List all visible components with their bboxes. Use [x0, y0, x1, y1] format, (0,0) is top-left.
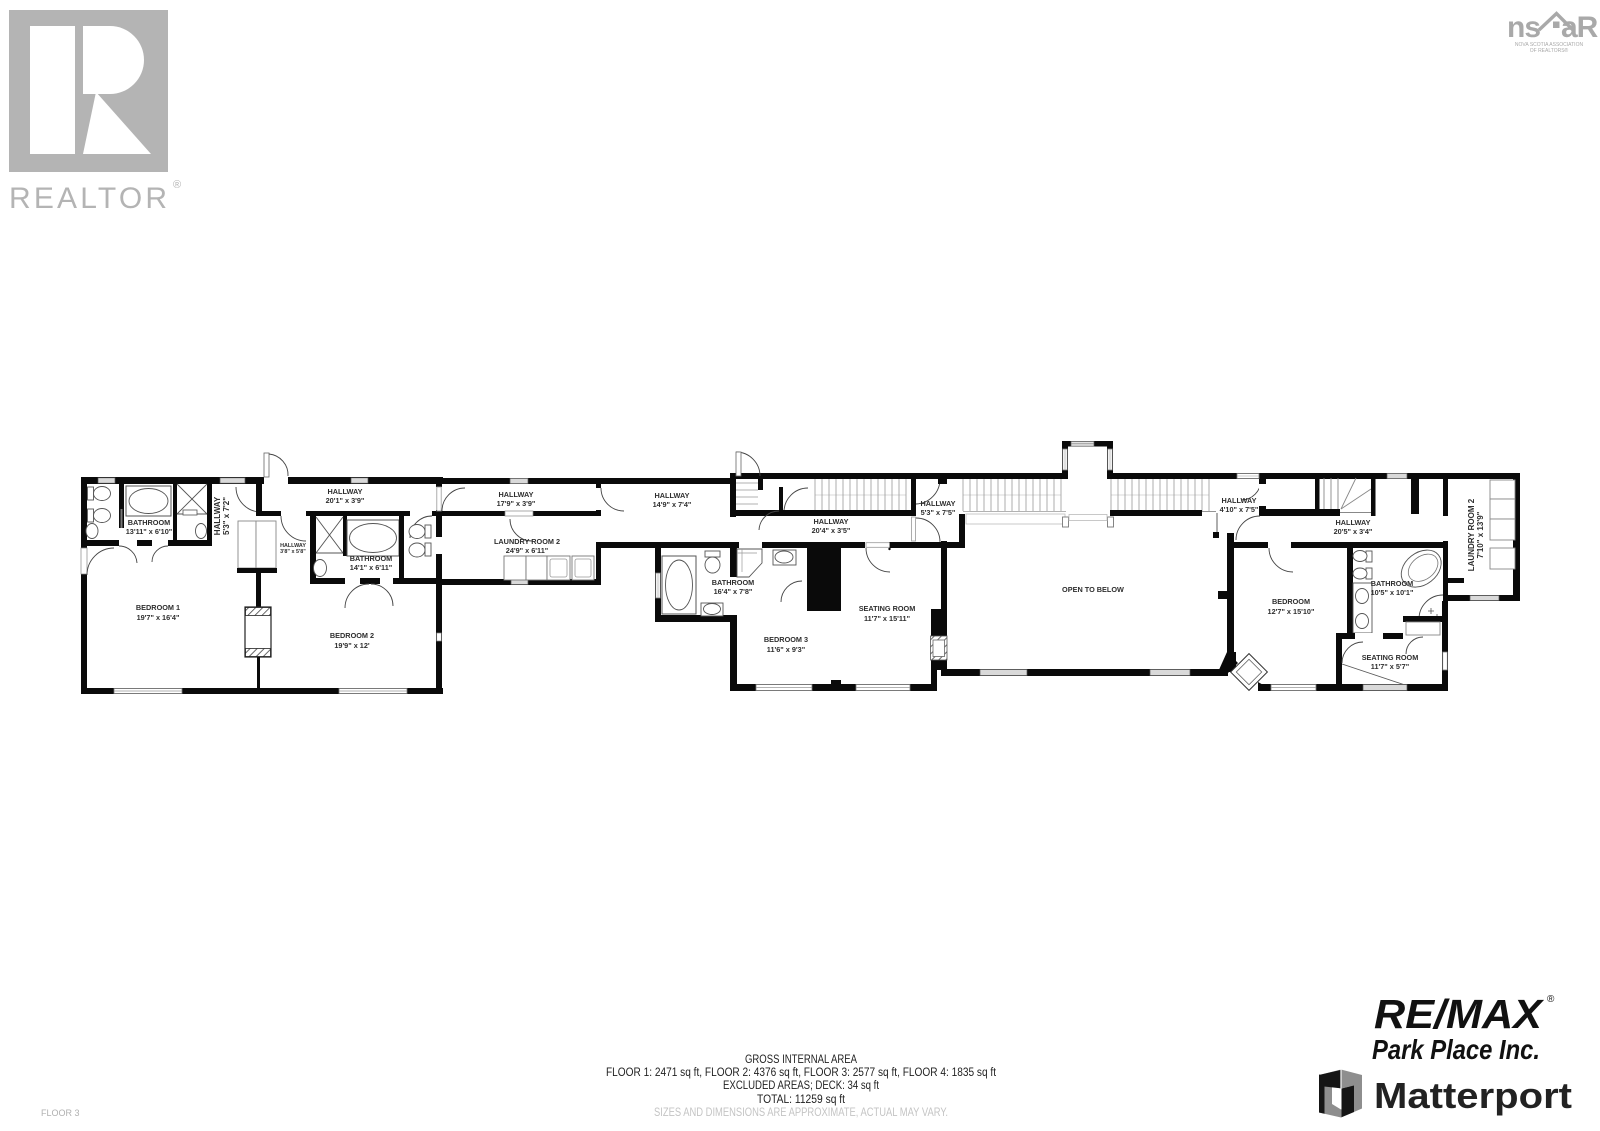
svg-text:®: ® — [1547, 994, 1555, 1005]
svg-text:BATHROOM: BATHROOM — [712, 578, 754, 587]
svg-text:HALLWAY: HALLWAY — [1335, 518, 1370, 527]
svg-text:20'5" x 3'4": 20'5" x 3'4" — [1334, 527, 1373, 536]
svg-text:5'3" x 7'2": 5'3" x 7'2" — [222, 497, 231, 535]
svg-text:BEDROOM: BEDROOM — [1272, 597, 1310, 606]
svg-text:HALLWAY: HALLWAY — [813, 517, 848, 526]
svg-text:HALLWAY: HALLWAY — [920, 499, 955, 508]
svg-text:®: ® — [173, 179, 181, 191]
svg-text:TOTAL: 11259 sq ft: TOTAL: 11259 sq ft — [757, 1094, 846, 1106]
svg-text:Matterport: Matterport — [1374, 1075, 1572, 1116]
svg-text:20'4" x 3'5": 20'4" x 3'5" — [812, 526, 851, 535]
svg-text:16'4" x 7'8": 16'4" x 7'8" — [714, 587, 753, 596]
svg-text:HALLWAY: HALLWAY — [654, 491, 689, 500]
svg-text:12'7" x 15'10": 12'7" x 15'10" — [1268, 607, 1315, 616]
svg-text:SEATING ROOM: SEATING ROOM — [1362, 653, 1419, 662]
svg-text:HALLWAY: HALLWAY — [213, 496, 222, 535]
svg-text:FLOOR 3: FLOOR 3 — [41, 1108, 80, 1118]
svg-text:19'7" x 16'4": 19'7" x 16'4" — [137, 613, 180, 622]
svg-text:HALLWAY: HALLWAY — [1221, 496, 1256, 505]
svg-text:14'1" x 6'11": 14'1" x 6'11" — [350, 563, 392, 572]
svg-text:BEDROOM 1: BEDROOM 1 — [136, 603, 180, 612]
svg-text:11'6" x 9'3": 11'6" x 9'3" — [767, 645, 805, 654]
svg-text:10'5" x 10'1": 10'5" x 10'1" — [1371, 588, 1414, 597]
svg-text:ns: ns — [1507, 11, 1540, 44]
svg-text:3'8" x 5'8": 3'8" x 5'8" — [280, 549, 306, 555]
svg-text:20'1" x 3'9": 20'1" x 3'9" — [326, 496, 365, 505]
svg-text:11'7" x 15'11": 11'7" x 15'11" — [864, 614, 910, 623]
svg-text:FLOOR 1: 2471 sq ft, FLOOR 2:: FLOOR 1: 2471 sq ft, FLOOR 2: 4376 sq ft… — [606, 1067, 997, 1079]
svg-text:19'9" x 12': 19'9" x 12' — [334, 641, 370, 650]
svg-text:Park Place Inc.: Park Place Inc. — [1372, 1034, 1540, 1065]
svg-text:BATHROOM: BATHROOM — [128, 518, 170, 527]
svg-text:REALTOR: REALTOR — [9, 182, 169, 215]
svg-text:BATHROOM: BATHROOM — [1371, 579, 1413, 588]
svg-text:5'3" x 7'5": 5'3" x 7'5" — [921, 508, 956, 517]
svg-text:BEDROOM 3: BEDROOM 3 — [764, 635, 808, 644]
svg-text:LAUNDRY ROOM 2: LAUNDRY ROOM 2 — [1467, 498, 1476, 571]
svg-text:17'9" x 3'9": 17'9" x 3'9" — [497, 499, 536, 508]
svg-text:13'11" x 6'10": 13'11" x 6'10" — [126, 527, 173, 536]
svg-text:HALLWAY: HALLWAY — [498, 490, 533, 499]
svg-text:OPEN TO BELOW: OPEN TO BELOW — [1062, 585, 1124, 594]
svg-text:SEATING ROOM: SEATING ROOM — [859, 604, 916, 613]
svg-text:4'10" x 7'5": 4'10" x 7'5" — [1220, 505, 1259, 514]
svg-text:11'7" x 5'7": 11'7" x 5'7" — [1371, 662, 1409, 671]
svg-text:aR: aR — [1561, 11, 1599, 44]
svg-text:14'9" x 7'4": 14'9" x 7'4" — [653, 500, 692, 509]
svg-text:LAUNDRY ROOM 2: LAUNDRY ROOM 2 — [494, 537, 560, 546]
svg-text:SIZES AND DIMENSIONS ARE APPRO: SIZES AND DIMENSIONS ARE APPROXIMATE, AC… — [654, 1107, 948, 1119]
svg-text:24'9" x 6'11": 24'9" x 6'11" — [506, 546, 548, 555]
svg-text:RE/MAX: RE/MAX — [1374, 991, 1545, 1037]
svg-text:OF REALTORS®: OF REALTORS® — [1530, 47, 1569, 54]
svg-text:EXCLUDED AREAS; DECK: 34 sq ft: EXCLUDED AREAS; DECK: 34 sq ft — [723, 1080, 880, 1092]
svg-text:BATHROOM: BATHROOM — [350, 554, 392, 563]
svg-text:7'10" x 13'9": 7'10" x 13'9" — [1476, 511, 1485, 558]
svg-text:GROSS INTERNAL AREA: GROSS INTERNAL AREA — [745, 1054, 857, 1066]
svg-text:HALLWAY: HALLWAY — [327, 487, 362, 496]
svg-text:BEDROOM 2: BEDROOM 2 — [330, 631, 374, 640]
